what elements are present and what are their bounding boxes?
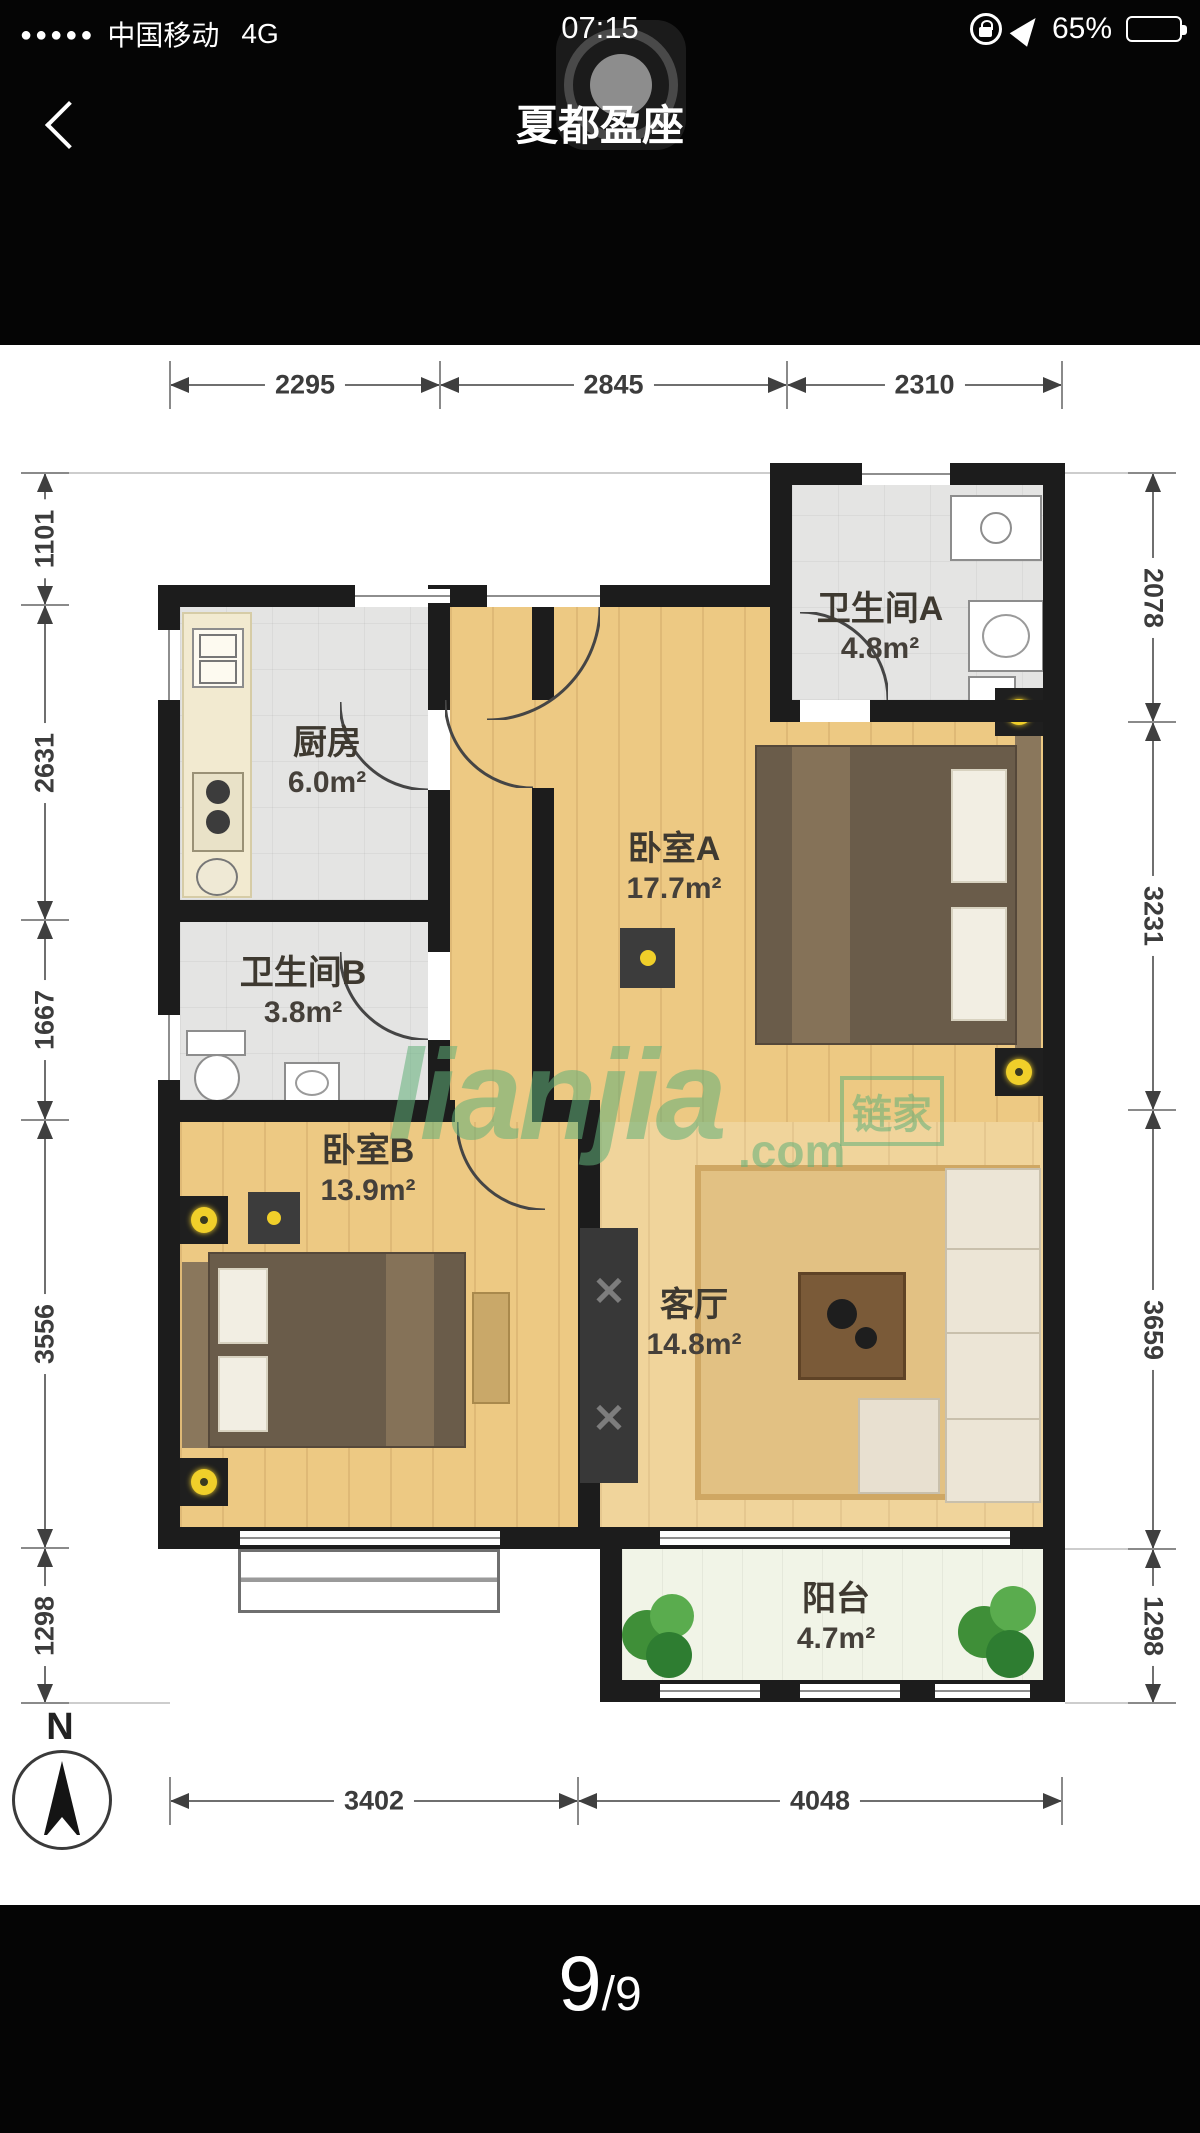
dimension-value: 3402 xyxy=(334,1786,414,1817)
wall xyxy=(158,585,180,630)
bedside-lamp xyxy=(180,1458,228,1506)
dimension-segment: 1298 xyxy=(1152,1549,1154,1703)
dimension-tick xyxy=(577,1777,579,1825)
page-indicator: 9/9 xyxy=(0,1938,1200,2029)
wall xyxy=(158,700,180,1015)
bed-headboard xyxy=(182,1262,208,1448)
wall xyxy=(428,585,450,710)
wall xyxy=(870,700,1065,722)
compass-north-label: N xyxy=(20,1706,100,1749)
bedside-lamp xyxy=(995,1048,1043,1096)
battery-percent-label: 65% xyxy=(1052,12,1112,46)
dimension-tick xyxy=(21,1119,69,1121)
balcony-window xyxy=(800,1684,900,1698)
page-divider: / xyxy=(602,1968,615,2021)
wall xyxy=(158,585,355,607)
room-label-living-room: 客厅 14.8m² xyxy=(604,1284,784,1364)
wall xyxy=(600,585,790,607)
kitchen-sink xyxy=(192,628,244,688)
dimension-value: 2631 xyxy=(30,722,61,802)
side-table xyxy=(620,928,675,988)
status-bar-right: 65% xyxy=(970,12,1182,46)
dimension-value: 3556 xyxy=(30,1294,61,1374)
room-area: 13.9m² xyxy=(278,1172,458,1210)
dimension-segment: 2310 xyxy=(787,384,1062,386)
room-area: 4.7m² xyxy=(746,1620,926,1658)
dimension-value: 1298 xyxy=(30,1585,61,1665)
dimension-segment: 4048 xyxy=(578,1800,1062,1802)
dimension-tick xyxy=(1061,1777,1063,1825)
plant xyxy=(958,1586,1042,1680)
wall xyxy=(158,900,450,922)
dimension-segment: 2295 xyxy=(170,384,440,386)
bay-window-opening xyxy=(240,1531,500,1545)
reference-line xyxy=(55,472,770,474)
wall xyxy=(770,700,800,722)
page-total: 9 xyxy=(615,1968,642,2021)
watermark-domain: .com xyxy=(738,1124,845,1178)
dimension-value: 3231 xyxy=(1138,876,1169,956)
dimension-tick xyxy=(439,361,441,409)
dimension-tick xyxy=(21,604,69,606)
compass-icon xyxy=(12,1750,112,1850)
dimension-tick xyxy=(1061,361,1063,409)
washbasin xyxy=(284,1062,340,1104)
battery-icon xyxy=(1126,16,1182,42)
room-name: 卧室A xyxy=(584,828,764,870)
room-area: 4.8m² xyxy=(790,630,970,668)
dimension-tick xyxy=(1128,472,1176,474)
plant xyxy=(622,1592,702,1680)
window xyxy=(162,1015,176,1080)
dimension-segment: 3556 xyxy=(44,1120,46,1548)
dimension-value: 2845 xyxy=(573,370,653,401)
wall xyxy=(158,1080,180,1549)
bed-bench xyxy=(472,1292,510,1404)
room-name: 卫生间B xyxy=(213,952,393,994)
bay-window xyxy=(238,1549,500,1613)
orientation-lock-icon xyxy=(970,13,1002,45)
bedside-lamp xyxy=(180,1196,228,1244)
dimension-segment: 1667 xyxy=(44,920,46,1120)
coffee-table xyxy=(798,1272,906,1380)
window xyxy=(355,589,450,603)
dimension-value: 2078 xyxy=(1138,557,1169,637)
room-area: 3.8m² xyxy=(213,994,393,1032)
page-title: 夏都盈座 xyxy=(0,92,1200,153)
room-area: 17.7m² xyxy=(584,870,764,908)
dimension-segment: 2078 xyxy=(1152,473,1154,722)
room-name: 卧室B xyxy=(278,1130,458,1172)
dimension-value: 1667 xyxy=(30,980,61,1060)
location-arrow-icon xyxy=(1010,11,1045,47)
balcony-window xyxy=(660,1684,760,1698)
window xyxy=(862,467,950,481)
room-area: 6.0m² xyxy=(237,764,417,802)
sofa xyxy=(945,1168,1041,1503)
ottoman xyxy=(858,1398,940,1494)
dimension-segment: 2631 xyxy=(44,605,46,920)
room-name: 客厅 xyxy=(604,1284,784,1326)
dimension-segment: 1298 xyxy=(44,1548,46,1703)
dimension-segment: 3231 xyxy=(1152,722,1154,1110)
dimension-tick xyxy=(169,361,171,409)
dimension-tick xyxy=(21,472,69,474)
room-label-balcony: 阳台 4.7m² xyxy=(746,1578,926,1658)
dimension-value: 2310 xyxy=(884,370,964,401)
washing-machine xyxy=(950,495,1042,561)
toilet-bowl xyxy=(194,1054,240,1102)
balcony-sliding-door xyxy=(660,1531,1010,1545)
dimension-tick xyxy=(21,1702,69,1704)
dimension-value: 1101 xyxy=(30,500,61,579)
wall xyxy=(450,585,487,607)
room-label-bathroom-b: 卫生间B 3.8m² xyxy=(213,952,393,1032)
dimension-segment: 3659 xyxy=(1152,1110,1154,1549)
room-label-bedroom-b: 卧室B 13.9m² xyxy=(278,1130,458,1210)
dimension-tick xyxy=(1128,1702,1176,1704)
dimension-tick xyxy=(1128,721,1176,723)
dimension-segment: 3402 xyxy=(170,1800,578,1802)
dimension-tick xyxy=(21,919,69,921)
wall xyxy=(1043,463,1065,1549)
window xyxy=(162,630,176,700)
dimension-tick xyxy=(21,1547,69,1549)
wall xyxy=(770,463,862,485)
balcony-window xyxy=(935,1684,1030,1698)
bed-b xyxy=(208,1252,466,1448)
bed-a xyxy=(755,745,1017,1045)
dimension-tick xyxy=(169,1777,171,1825)
page-current: 9 xyxy=(558,1939,601,2027)
room-name: 厨房 xyxy=(237,722,417,764)
toilet-tank xyxy=(186,1030,246,1056)
room-name: 卫生间A xyxy=(790,588,970,630)
dimension-tick xyxy=(1128,1548,1176,1550)
entry-door-threshold xyxy=(487,589,600,603)
wall xyxy=(428,922,450,952)
room-label-bathroom-a: 卫生间A 4.8m² xyxy=(790,588,970,668)
screen: ●●●●● 中国移动 4G 07:15 65% 夏都盈座 xyxy=(0,0,1200,2133)
bed-headboard xyxy=(1015,735,1041,1055)
kitchen-appliance xyxy=(196,858,238,896)
room-label-kitchen: 厨房 6.0m² xyxy=(237,722,417,802)
watermark-logo: 链家 xyxy=(840,1076,944,1146)
room-name: 阳台 xyxy=(746,1578,926,1620)
door-arc-bedroom-a xyxy=(445,700,533,788)
dimension-value: 4048 xyxy=(780,1786,860,1817)
dimension-segment: 2845 xyxy=(440,384,787,386)
dimension-value: 2295 xyxy=(265,370,345,401)
bathroom-sink xyxy=(968,600,1044,672)
room-area: 14.8m² xyxy=(604,1326,784,1364)
wall xyxy=(770,485,792,700)
room-label-bedroom-a: 卧室A 17.7m² xyxy=(584,828,764,908)
dimension-tick xyxy=(786,361,788,409)
dimension-segment: 1101 xyxy=(44,473,46,605)
dimension-value: 3659 xyxy=(1138,1289,1169,1369)
dimension-tick xyxy=(1128,1109,1176,1111)
dimension-value: 1298 xyxy=(1138,1586,1169,1666)
